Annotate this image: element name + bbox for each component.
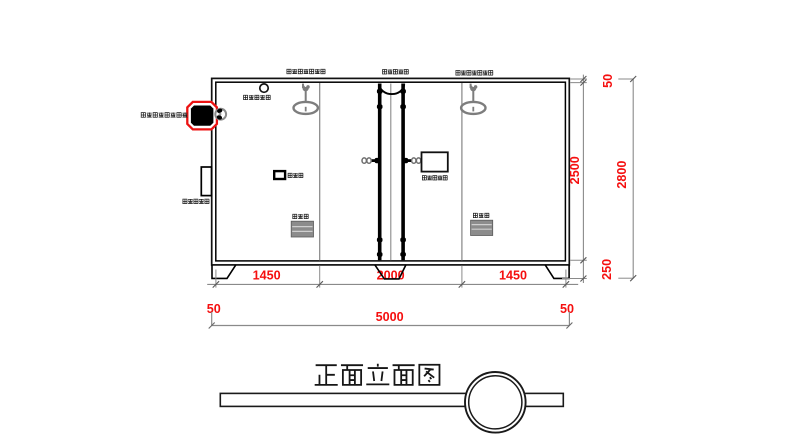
svg-text:50: 50 [207,302,221,316]
svg-text:2800: 2800 [615,161,629,189]
svg-text:1450: 1450 [253,269,281,283]
svg-text:5000: 5000 [376,310,404,324]
svg-text:250: 250 [600,259,614,280]
svg-text:1450: 1450 [499,269,527,283]
svg-text:50: 50 [560,302,574,316]
svg-text:50: 50 [601,74,615,88]
svg-text:2500: 2500 [568,156,582,184]
